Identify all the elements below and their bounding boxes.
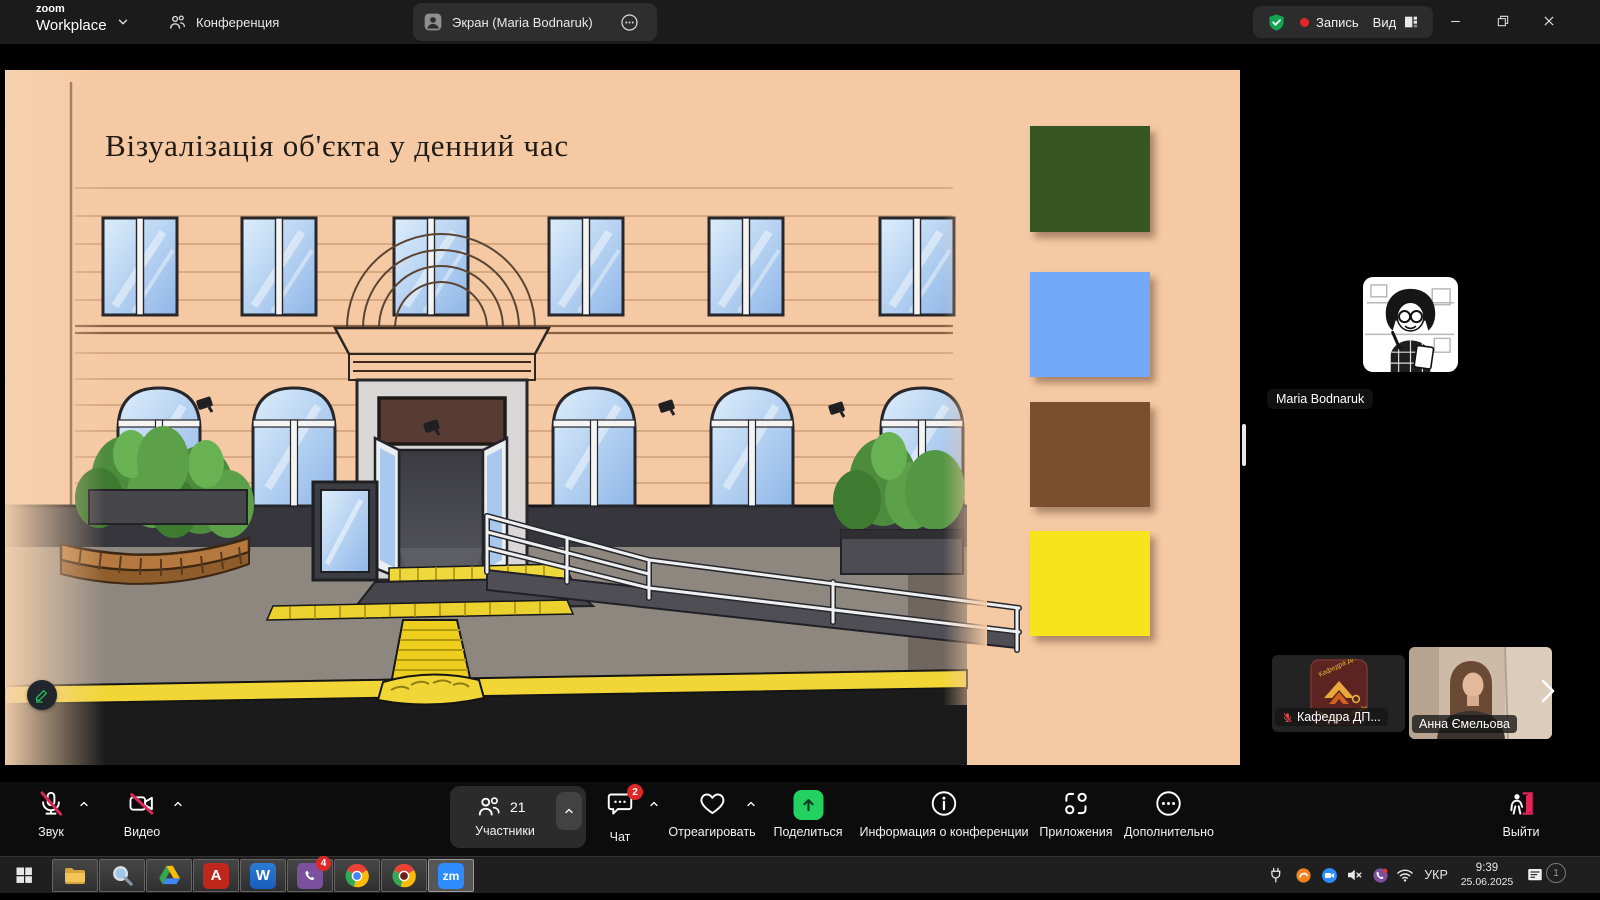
zoom-workplace-logo: zoom Workplace	[36, 4, 107, 33]
audio-label: Звук	[38, 825, 64, 839]
action-center-icon	[1526, 866, 1544, 884]
view-button[interactable]: Вид	[1373, 14, 1420, 30]
leave-label: Выйти	[1502, 825, 1539, 839]
taskbar-search-app[interactable]	[99, 859, 145, 892]
palette-swatch-brown	[1030, 402, 1150, 507]
leave-door-icon	[1507, 790, 1535, 817]
slide-title: Візуалізація об'єкта у денний час	[105, 128, 569, 164]
restore-button[interactable]	[1486, 6, 1520, 36]
pencil-icon	[34, 687, 50, 703]
video-button[interactable]: Видео	[124, 790, 161, 839]
tray-power-icon[interactable]	[1264, 857, 1288, 893]
word-icon: W	[250, 863, 276, 889]
audio-button[interactable]: Звук	[38, 790, 65, 839]
panel-resize-handle[interactable]	[1242, 424, 1246, 466]
share-screen-label: Поделиться	[773, 825, 842, 839]
zoom-app-icon: zm	[438, 863, 464, 889]
tray-viber-icon[interactable]	[1368, 857, 1392, 893]
acrobat-icon: A	[203, 863, 229, 889]
muted-mic-icon	[1282, 712, 1293, 723]
view-label: Вид	[1373, 15, 1397, 30]
minimize-button[interactable]	[1438, 6, 1472, 36]
security-shield-icon[interactable]	[1267, 13, 1286, 32]
taskbar-acrobat[interactable]: A	[193, 859, 239, 892]
participants-options-button[interactable]	[556, 792, 582, 830]
taskbar-viber[interactable]: 4	[287, 859, 333, 892]
recording-label: Запись	[1316, 15, 1359, 30]
taskbar-google-drive[interactable]	[146, 859, 192, 892]
workspace-chevron-down-icon[interactable]	[116, 15, 130, 29]
camera-muted-icon	[128, 790, 156, 817]
more-label: Дополнительно	[1124, 825, 1214, 839]
participants-options-chevron-icon	[563, 805, 575, 817]
tray-time: 9:39	[1476, 861, 1498, 875]
participants-count: 21	[510, 799, 526, 815]
tray-clock[interactable]: 9:39 25.06.2025	[1456, 857, 1518, 893]
reactions-button[interactable]: Отреагировать	[668, 790, 755, 839]
start-button[interactable]	[2, 859, 46, 890]
tray-volume-muted-icon[interactable]	[1342, 857, 1366, 893]
more-button[interactable]: Дополнительно	[1124, 790, 1214, 839]
zoom-title-bar: zoom Workplace Конференция Экран (Maria …	[0, 0, 1600, 44]
annotate-button[interactable]	[27, 680, 57, 710]
more-ellipsis-icon	[1156, 790, 1183, 817]
reactions-options-chevron-icon[interactable]	[745, 798, 757, 810]
taskbar-chrome-profile2[interactable]	[381, 859, 427, 892]
close-button[interactable]	[1532, 6, 1566, 36]
tray-date: 25.06.2025	[1461, 876, 1514, 889]
google-drive-icon	[158, 864, 181, 887]
participants-button[interactable]: 21 Участники	[450, 786, 586, 848]
viber-badge: 4	[316, 856, 331, 871]
tab-screen-share[interactable]: Экран (Maria Bodnaruk)	[413, 3, 657, 41]
notification-count-badge: 1	[1546, 863, 1566, 883]
participants-icon	[476, 794, 502, 820]
action-center-button[interactable]	[1522, 857, 1548, 893]
folder-icon	[63, 864, 87, 888]
apps-label: Приложения	[1039, 825, 1112, 839]
chat-badge: 2	[627, 784, 643, 800]
info-icon	[931, 790, 958, 817]
participant-tile-kafedra[interactable]: Кафедра ДПМ та дизайн Кафедра ДП...	[1272, 655, 1405, 732]
chat-label: Чат	[610, 830, 631, 844]
tray-orange-app-icon[interactable]	[1291, 857, 1315, 893]
tray-zoom-icon[interactable]	[1317, 857, 1341, 893]
palette-swatch-blue	[1030, 272, 1150, 377]
windows-logo-icon	[14, 865, 34, 885]
shared-screen-slide: Візуалізація об'єкта у денний час	[5, 70, 1240, 765]
next-participants-chevron-icon[interactable]	[1538, 676, 1558, 706]
speaker-name-label: Maria Bodnaruk	[1267, 389, 1373, 409]
palette-swatch-green	[1030, 126, 1150, 232]
video-options-chevron-icon[interactable]	[172, 798, 184, 810]
share-screen-icon	[793, 790, 823, 820]
recording-indicator[interactable]: Запись	[1300, 15, 1359, 30]
taskbar-zoom-active[interactable]: zm	[428, 859, 474, 892]
chat-options-chevron-icon[interactable]	[648, 798, 660, 810]
meeting-status-group: Запись Вид	[1253, 6, 1433, 38]
people-icon	[168, 13, 187, 32]
tray-language[interactable]: УКР	[1418, 857, 1454, 893]
speaker-avatar[interactable]	[1363, 277, 1458, 372]
avatar-illustration-icon	[1363, 277, 1458, 372]
viber-icon: 4	[297, 863, 323, 889]
chrome-dark-icon	[392, 864, 416, 888]
apps-button[interactable]: Приложения	[1039, 790, 1112, 839]
leave-button[interactable]: Выйти	[1502, 790, 1539, 839]
participants-label: Участники	[450, 824, 560, 838]
view-layout-icon	[1403, 14, 1419, 30]
share-screen-button[interactable]: Поделиться	[773, 790, 842, 839]
reactions-label: Отреагировать	[668, 825, 755, 839]
video-label: Видео	[124, 825, 161, 839]
tab-screen-label: Экран (Maria Bodnaruk)	[452, 15, 593, 30]
heart-icon	[698, 790, 726, 817]
windows-taskbar: A W 4 zm УКР 9:39 25.06.2025	[0, 856, 1600, 893]
tab-more-icon[interactable]	[620, 13, 639, 32]
tab-meeting-label: Конференция	[196, 15, 279, 30]
magnifier-icon	[111, 864, 134, 887]
palette-swatch-yellow	[1030, 531, 1150, 636]
record-dot-icon	[1300, 18, 1309, 27]
screen-avatar-icon	[423, 12, 443, 32]
meeting-info-label: Информация о конференции	[859, 825, 1028, 839]
meeting-toolbar: Звук Видео 21 Участники 2 Чат Отреагиров…	[0, 782, 1600, 856]
chrome-icon	[345, 864, 369, 888]
participant-name-label: Кафедра ДП...	[1275, 708, 1388, 726]
participant-tile-anna[interactable]: Анна Ємельова	[1409, 647, 1552, 739]
logo-line-workplace: Workplace	[36, 18, 107, 33]
logo-line-zoom: zoom	[36, 4, 107, 15]
taskbar-file-explorer[interactable]	[52, 859, 98, 892]
taskbar-chrome[interactable]	[334, 859, 380, 892]
tab-meeting[interactable]: Конференция	[168, 0, 279, 44]
tray-wifi-icon[interactable]	[1393, 857, 1417, 893]
apps-icon	[1062, 790, 1089, 817]
chat-button[interactable]: 2 Чат	[606, 790, 634, 844]
mic-muted-icon	[38, 790, 65, 817]
audio-options-chevron-icon[interactable]	[78, 798, 90, 810]
taskbar-word[interactable]: W	[240, 859, 286, 892]
participant-name-label: Анна Ємельова	[1412, 715, 1517, 733]
meeting-info-button[interactable]: Информация о конференции	[859, 790, 1028, 839]
